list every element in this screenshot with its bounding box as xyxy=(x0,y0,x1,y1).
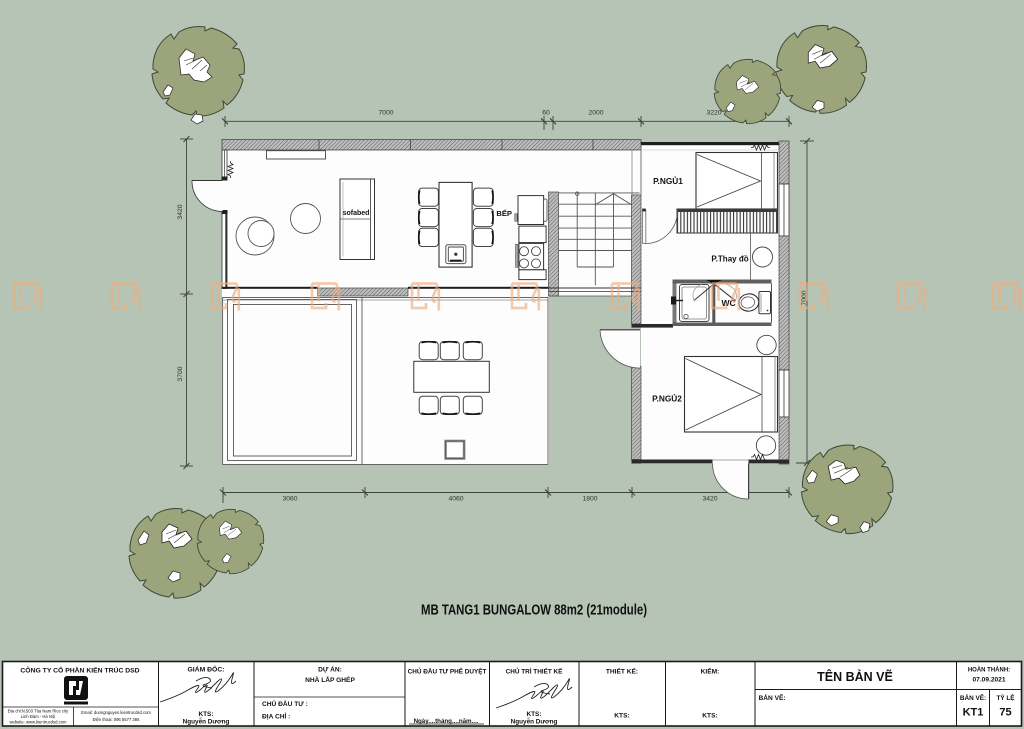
svg-text:Nguyễn Dương: Nguyễn Dương xyxy=(511,717,558,726)
svg-text:4060: 4060 xyxy=(448,496,463,503)
svg-text:3420: 3420 xyxy=(177,204,184,219)
svg-text:1800: 1800 xyxy=(582,496,597,503)
svg-text:TÊN BẢN VẼ: TÊN BẢN VẼ xyxy=(817,669,893,684)
svg-text:Điện thoại: 096 5577 386: Điện thoại: 096 5577 386 xyxy=(93,717,140,722)
svg-text:KTS:: KTS: xyxy=(702,713,717,720)
svg-text:7000: 7000 xyxy=(378,110,393,117)
svg-text:Linh Đàm - Hà Nội: Linh Đàm - Hà Nội xyxy=(21,714,56,719)
svg-text:3420: 3420 xyxy=(702,496,717,503)
svg-text:3700: 3700 xyxy=(177,366,184,381)
svg-text:P.NGỦ1: P.NGỦ1 xyxy=(653,175,683,186)
svg-text:3060: 3060 xyxy=(282,496,297,503)
svg-text:BẢN VẼ:: BẢN VẼ: xyxy=(759,693,786,702)
svg-text:ĐỊA CHỈ :: ĐỊA CHỈ : xyxy=(262,712,290,721)
svg-text:DỰ ÁN:: DỰ ÁN: xyxy=(318,665,342,674)
svg-text:3220: 3220 xyxy=(706,110,721,117)
svg-text:BẢN VẼ:: BẢN VẼ: xyxy=(960,693,986,702)
svg-text:Email: duongnguyen.kientrucdsd: Email: duongnguyen.kientrucdsd.com xyxy=(81,710,151,715)
svg-text:Nguyễn Dương: Nguyễn Dương xyxy=(183,717,230,726)
svg-text:KT1: KT1 xyxy=(963,707,984,719)
svg-text:75: 75 xyxy=(999,707,1011,719)
svg-text:KTS:: KTS: xyxy=(614,713,629,720)
svg-text:60: 60 xyxy=(542,110,550,117)
svg-text:website: www.kientrucdsd.com: website: www.kientrucdsd.com xyxy=(9,720,67,725)
svg-text:07.09.2021: 07.09.2021 xyxy=(972,677,1005,684)
svg-text:sofabed: sofabed xyxy=(343,210,370,217)
svg-text:P.NGỦ2: P.NGỦ2 xyxy=(652,393,682,404)
svg-text:KIỂM:: KIỂM: xyxy=(701,667,720,676)
svg-text:TỶ LỆ: TỶ LỆ xyxy=(996,693,1015,702)
svg-text:KTS:: KTS: xyxy=(527,711,542,718)
svg-text:KTS:: KTS: xyxy=(199,711,214,718)
svg-text:Địa chỉ:N.503 Tòa Nam Rice cit: Địa chỉ:N.503 Tòa Nam Rice city xyxy=(8,709,69,714)
svg-text:MB TANG1 BUNGALOW 88m2 (21modu: MB TANG1 BUNGALOW 88m2 (21module) xyxy=(421,602,647,619)
svg-text:BẾP: BẾP xyxy=(496,208,512,218)
svg-text:P.Thay đồ: P.Thay đồ xyxy=(711,255,748,264)
svg-text:2000: 2000 xyxy=(588,110,603,117)
svg-text:NHÀ LẮP GHÉP: NHÀ LẮP GHÉP xyxy=(305,675,355,684)
svg-text:HOÀN THÀNH:: HOÀN THÀNH: xyxy=(968,667,1010,674)
